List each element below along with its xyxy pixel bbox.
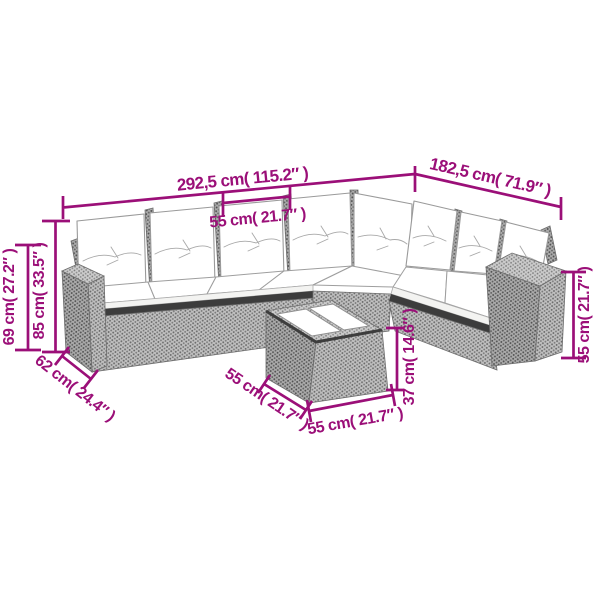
dim-label-back-height: 85 cm( 33.5″ ) (31, 242, 48, 339)
left-armrest (62, 264, 107, 372)
dim-label-overall-width-right: 182,5 cm( 71.9″ ) (428, 154, 553, 200)
dim-label-table-height: 37 cm( 14.6″ ) (401, 308, 418, 405)
armrest-side-face (62, 271, 92, 372)
back-cushion (406, 201, 457, 270)
right-armrest (486, 253, 566, 366)
back-cushion (150, 207, 215, 289)
diagram-canvas: 292,5 cm( 115.2″ ) 182,5 cm( 71.9″ ) 55 … (0, 0, 600, 600)
dim-label-arm-height: 69 cm( 27.2″ ) (1, 248, 18, 345)
dim-table-height: 37 cm( 14.6″ ) (386, 308, 418, 405)
sofa-illustration (62, 190, 566, 403)
dim-label-armrest-side-height: 55 cm( 21.7″ ) (576, 266, 593, 363)
product-dimension-diagram: 292,5 cm( 115.2″ ) 182,5 cm( 71.9″ ) 55 … (0, 0, 600, 600)
